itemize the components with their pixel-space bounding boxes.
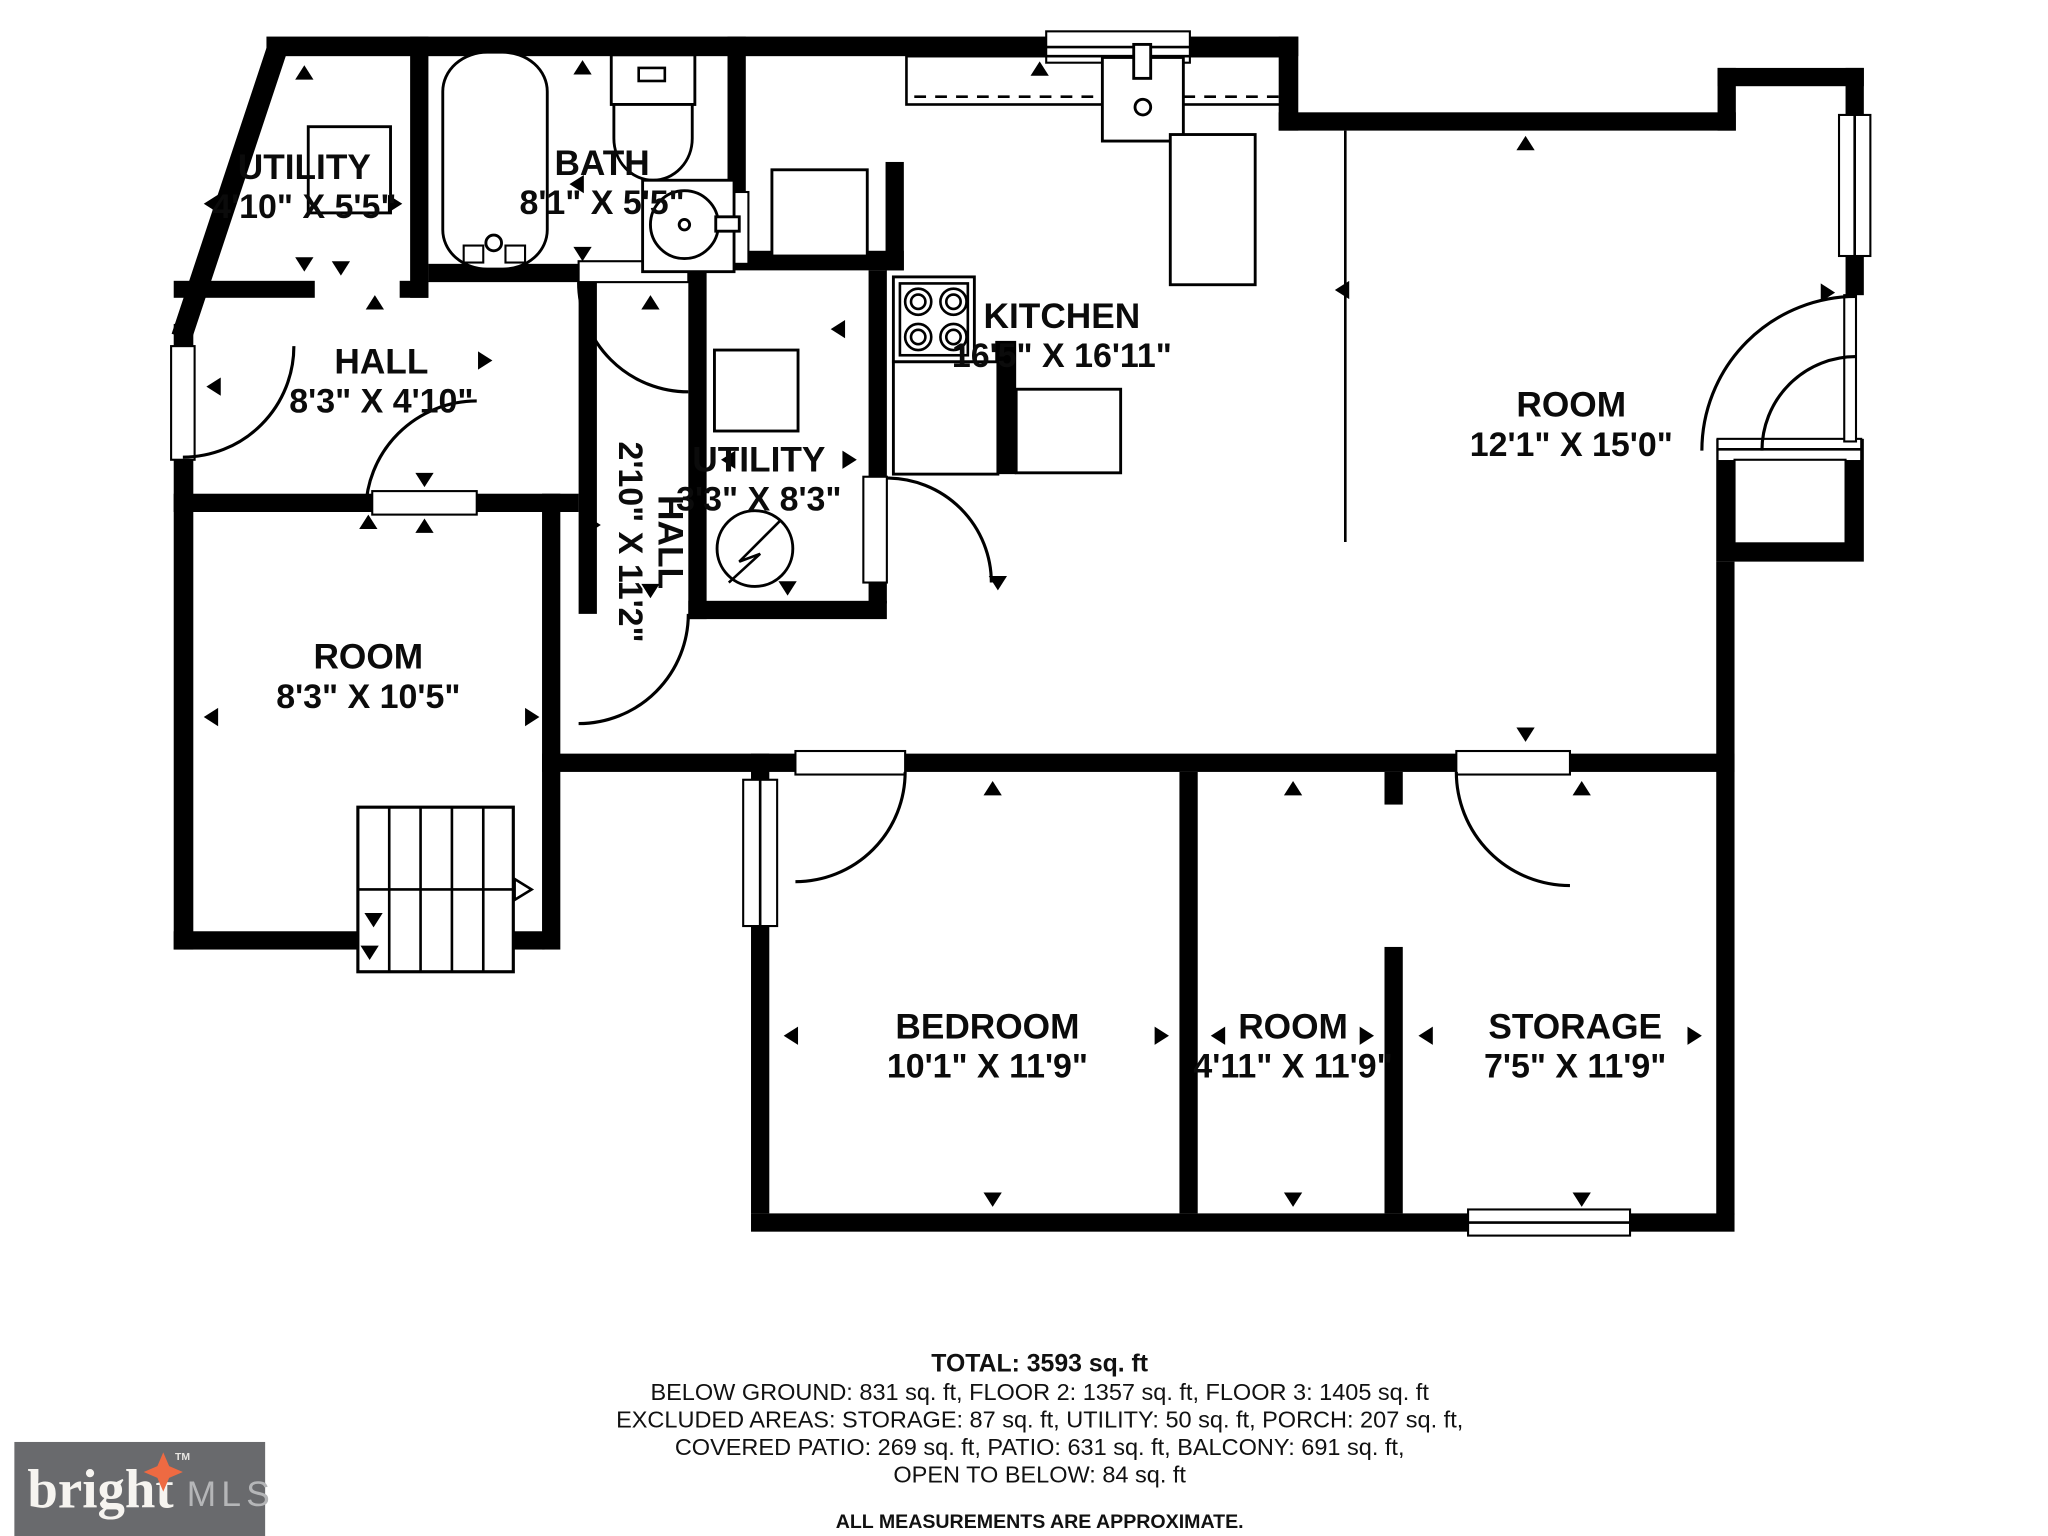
dims-room-right: 12'1" X 15'0"	[1470, 426, 1673, 464]
washer-utility-middle	[714, 350, 798, 431]
logo-brand-text: bright	[27, 1458, 174, 1519]
logo-tm-text: TM	[175, 1452, 190, 1463]
footer-total: TOTAL: 3593 sq. ft	[931, 1350, 1148, 1377]
label-kitchen: KITCHEN	[984, 297, 1141, 336]
dims-storage: 7'5" X 11'9"	[1484, 1048, 1666, 1086]
label-room-small: ROOM	[1238, 1007, 1348, 1046]
bay-inner	[1735, 460, 1846, 544]
bedroom-door-arc	[795, 772, 905, 882]
floor-plan-drawing: UTILITY 4'10" X 5'5" BATH 8'1" X 5'5" HA…	[0, 0, 2048, 1536]
label-bath: BATH	[554, 144, 649, 183]
dims-utility-middle: 3'3" X 8'3"	[676, 481, 841, 519]
french-door-sill	[1718, 439, 1862, 543]
label-bedroom: BEDROOM	[895, 1007, 1079, 1046]
footer-disclaimer: ALL MEASUREMENTS ARE APPROXIMATE.	[836, 1511, 1244, 1533]
footer-line2: BELOW GROUND: 831 sq. ft, FLOOR 2: 1357 …	[650, 1379, 1429, 1405]
logo-mls-text: MLS	[187, 1475, 275, 1514]
entry-door-arc	[183, 346, 294, 457]
door-arcs	[183, 183, 1856, 886]
french-door-arc-outer	[1702, 296, 1856, 450]
footer: TOTAL: 3593 sq. ft BELOW GROUND: 831 sq.…	[616, 1350, 1463, 1533]
french-door-leaf	[1844, 295, 1856, 441]
bathtub	[443, 52, 547, 269]
dims-hall-corridor: 2'10" X 11'2"	[611, 441, 649, 642]
water-heater	[717, 511, 793, 587]
dims-room-small: 4'11" X 11'9"	[1193, 1048, 1392, 1086]
label-room-right: ROOM	[1516, 386, 1626, 425]
french-door-arc-inner	[1762, 357, 1856, 451]
threshold-storage-door	[1456, 751, 1570, 775]
stairs	[358, 807, 532, 972]
threshold-bedroom-door	[795, 751, 905, 775]
floor-plan-page: UTILITY 4'10" X 5'5" BATH 8'1" X 5'5" HA…	[0, 0, 2048, 1536]
kitchen-island-cabinet	[1016, 389, 1120, 473]
kitchen-sink	[1102, 44, 1183, 141]
dims-room-left: 8'3" X 10'5"	[276, 678, 460, 716]
threshold-kitchen-door	[863, 477, 887, 583]
storage-door-arc	[1456, 772, 1570, 886]
label-utility-top-left: UTILITY	[238, 148, 371, 187]
dims-hall: 8'3" X 4'10"	[289, 383, 473, 421]
window-right	[1839, 115, 1870, 256]
label-storage: STORAGE	[1488, 1007, 1662, 1046]
window-storage-bottom	[1468, 1209, 1630, 1235]
label-hall: HALL	[334, 343, 428, 382]
threshold-entry	[171, 346, 195, 460]
refrigerator	[1170, 135, 1255, 285]
brand-logo: bright TM MLS	[14, 1442, 275, 1536]
footer-line4: COVERED PATIO: 269 sq. ft, PATIO: 631 sq…	[675, 1434, 1405, 1460]
window-bedroom-left	[743, 780, 777, 926]
dims-bedroom: 10'1" X 11'9"	[887, 1048, 1088, 1086]
label-utility-middle: UTILITY	[692, 441, 825, 480]
label-room-left: ROOM	[313, 638, 423, 677]
threshold-hall-room	[372, 491, 476, 515]
dims-kitchen: 16'5" X 16'11"	[952, 337, 1172, 375]
pantry-cabinet	[772, 170, 867, 256]
footer-line3: EXCLUDED AREAS: STORAGE: 87 sq. ft, UTIL…	[616, 1407, 1463, 1433]
dims-bath: 8'1" X 5'5"	[519, 184, 684, 222]
kitchen-door-arc	[887, 478, 991, 582]
footer-line5: OPEN TO BELOW: 84 sq. ft	[893, 1461, 1186, 1487]
label-hall-corridor-group: HALL 2'10" X 11'2"	[611, 441, 689, 642]
stairs-direction-arrow	[515, 879, 532, 900]
kitchen-base-cabinet	[893, 362, 997, 474]
label-hall-corridor: HALL	[650, 495, 689, 589]
dims-utility-top-left: 4'10" X 5'5"	[212, 188, 396, 226]
